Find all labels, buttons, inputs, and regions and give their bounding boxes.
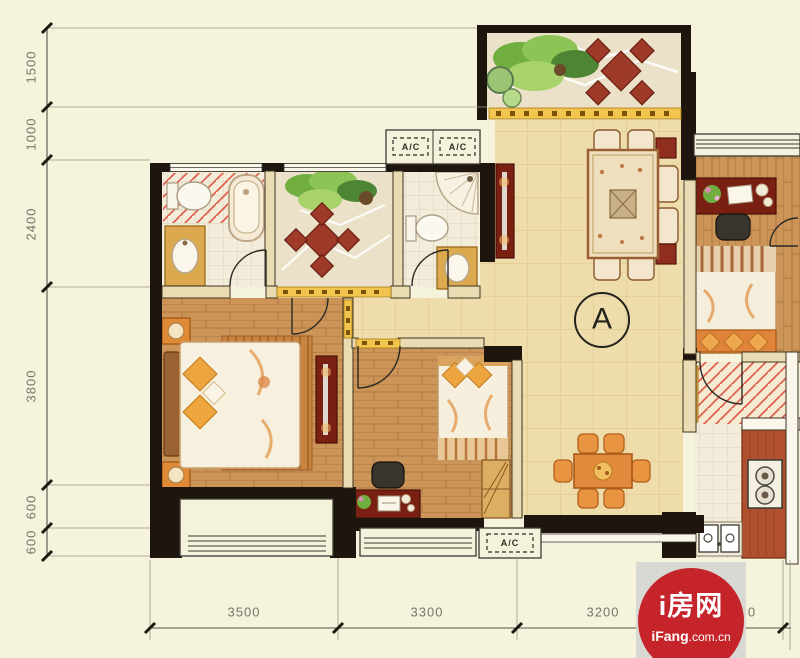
master-bed-icon (162, 318, 312, 488)
dim-left-1000: 1000 (24, 118, 39, 151)
vanity-sink-icon (437, 247, 477, 289)
dim-bottom-3500: 3500 (228, 605, 261, 620)
unit-marker-label: A (592, 302, 612, 336)
ac-label-top-left: A/C (402, 142, 421, 152)
master-wardrobe-icon (316, 356, 337, 443)
toilet-icon (167, 182, 211, 210)
site-watermark[interactable]: i房网 iFang.com.cn (636, 562, 746, 658)
logo-domain-rest: .com.cn (689, 630, 731, 644)
ac-label-bottom: A/C (501, 538, 520, 548)
second-bed-icon (438, 356, 508, 460)
logo-domain-bold: iFang (651, 628, 688, 644)
utility-bathroom-floor (694, 362, 788, 424)
floor-plan-drawing (0, 0, 800, 658)
ac-label-top-right: A/C (449, 142, 468, 152)
wardrobe-icon (482, 460, 510, 518)
dim-left-2400: 2400 (24, 208, 39, 241)
entry-cabinet-icon (496, 164, 514, 258)
dim-left-3800: 3800 (24, 370, 39, 403)
dim-left-600b: 600 (24, 530, 39, 555)
vanity-sink-icon (165, 226, 205, 286)
dim-left-600a: 600 (24, 495, 39, 520)
dim-bottom-partial: 0 (748, 605, 756, 620)
bathtub-icon (229, 175, 264, 241)
dim-left-1500: 1500 (24, 51, 39, 84)
third-bed-icon (694, 246, 776, 352)
logo-brand-text: i房网 (636, 584, 746, 623)
logo-domain-text: iFang.com.cn (636, 628, 746, 644)
floor-plan-page: 1500 1000 2400 3800 600 600 3500 3300 32… (0, 0, 800, 658)
dim-bottom-3200: 3200 (587, 605, 620, 620)
stove-icon (748, 460, 782, 508)
dim-bottom-3300: 3300 (411, 605, 444, 620)
toilet-icon (406, 215, 448, 241)
